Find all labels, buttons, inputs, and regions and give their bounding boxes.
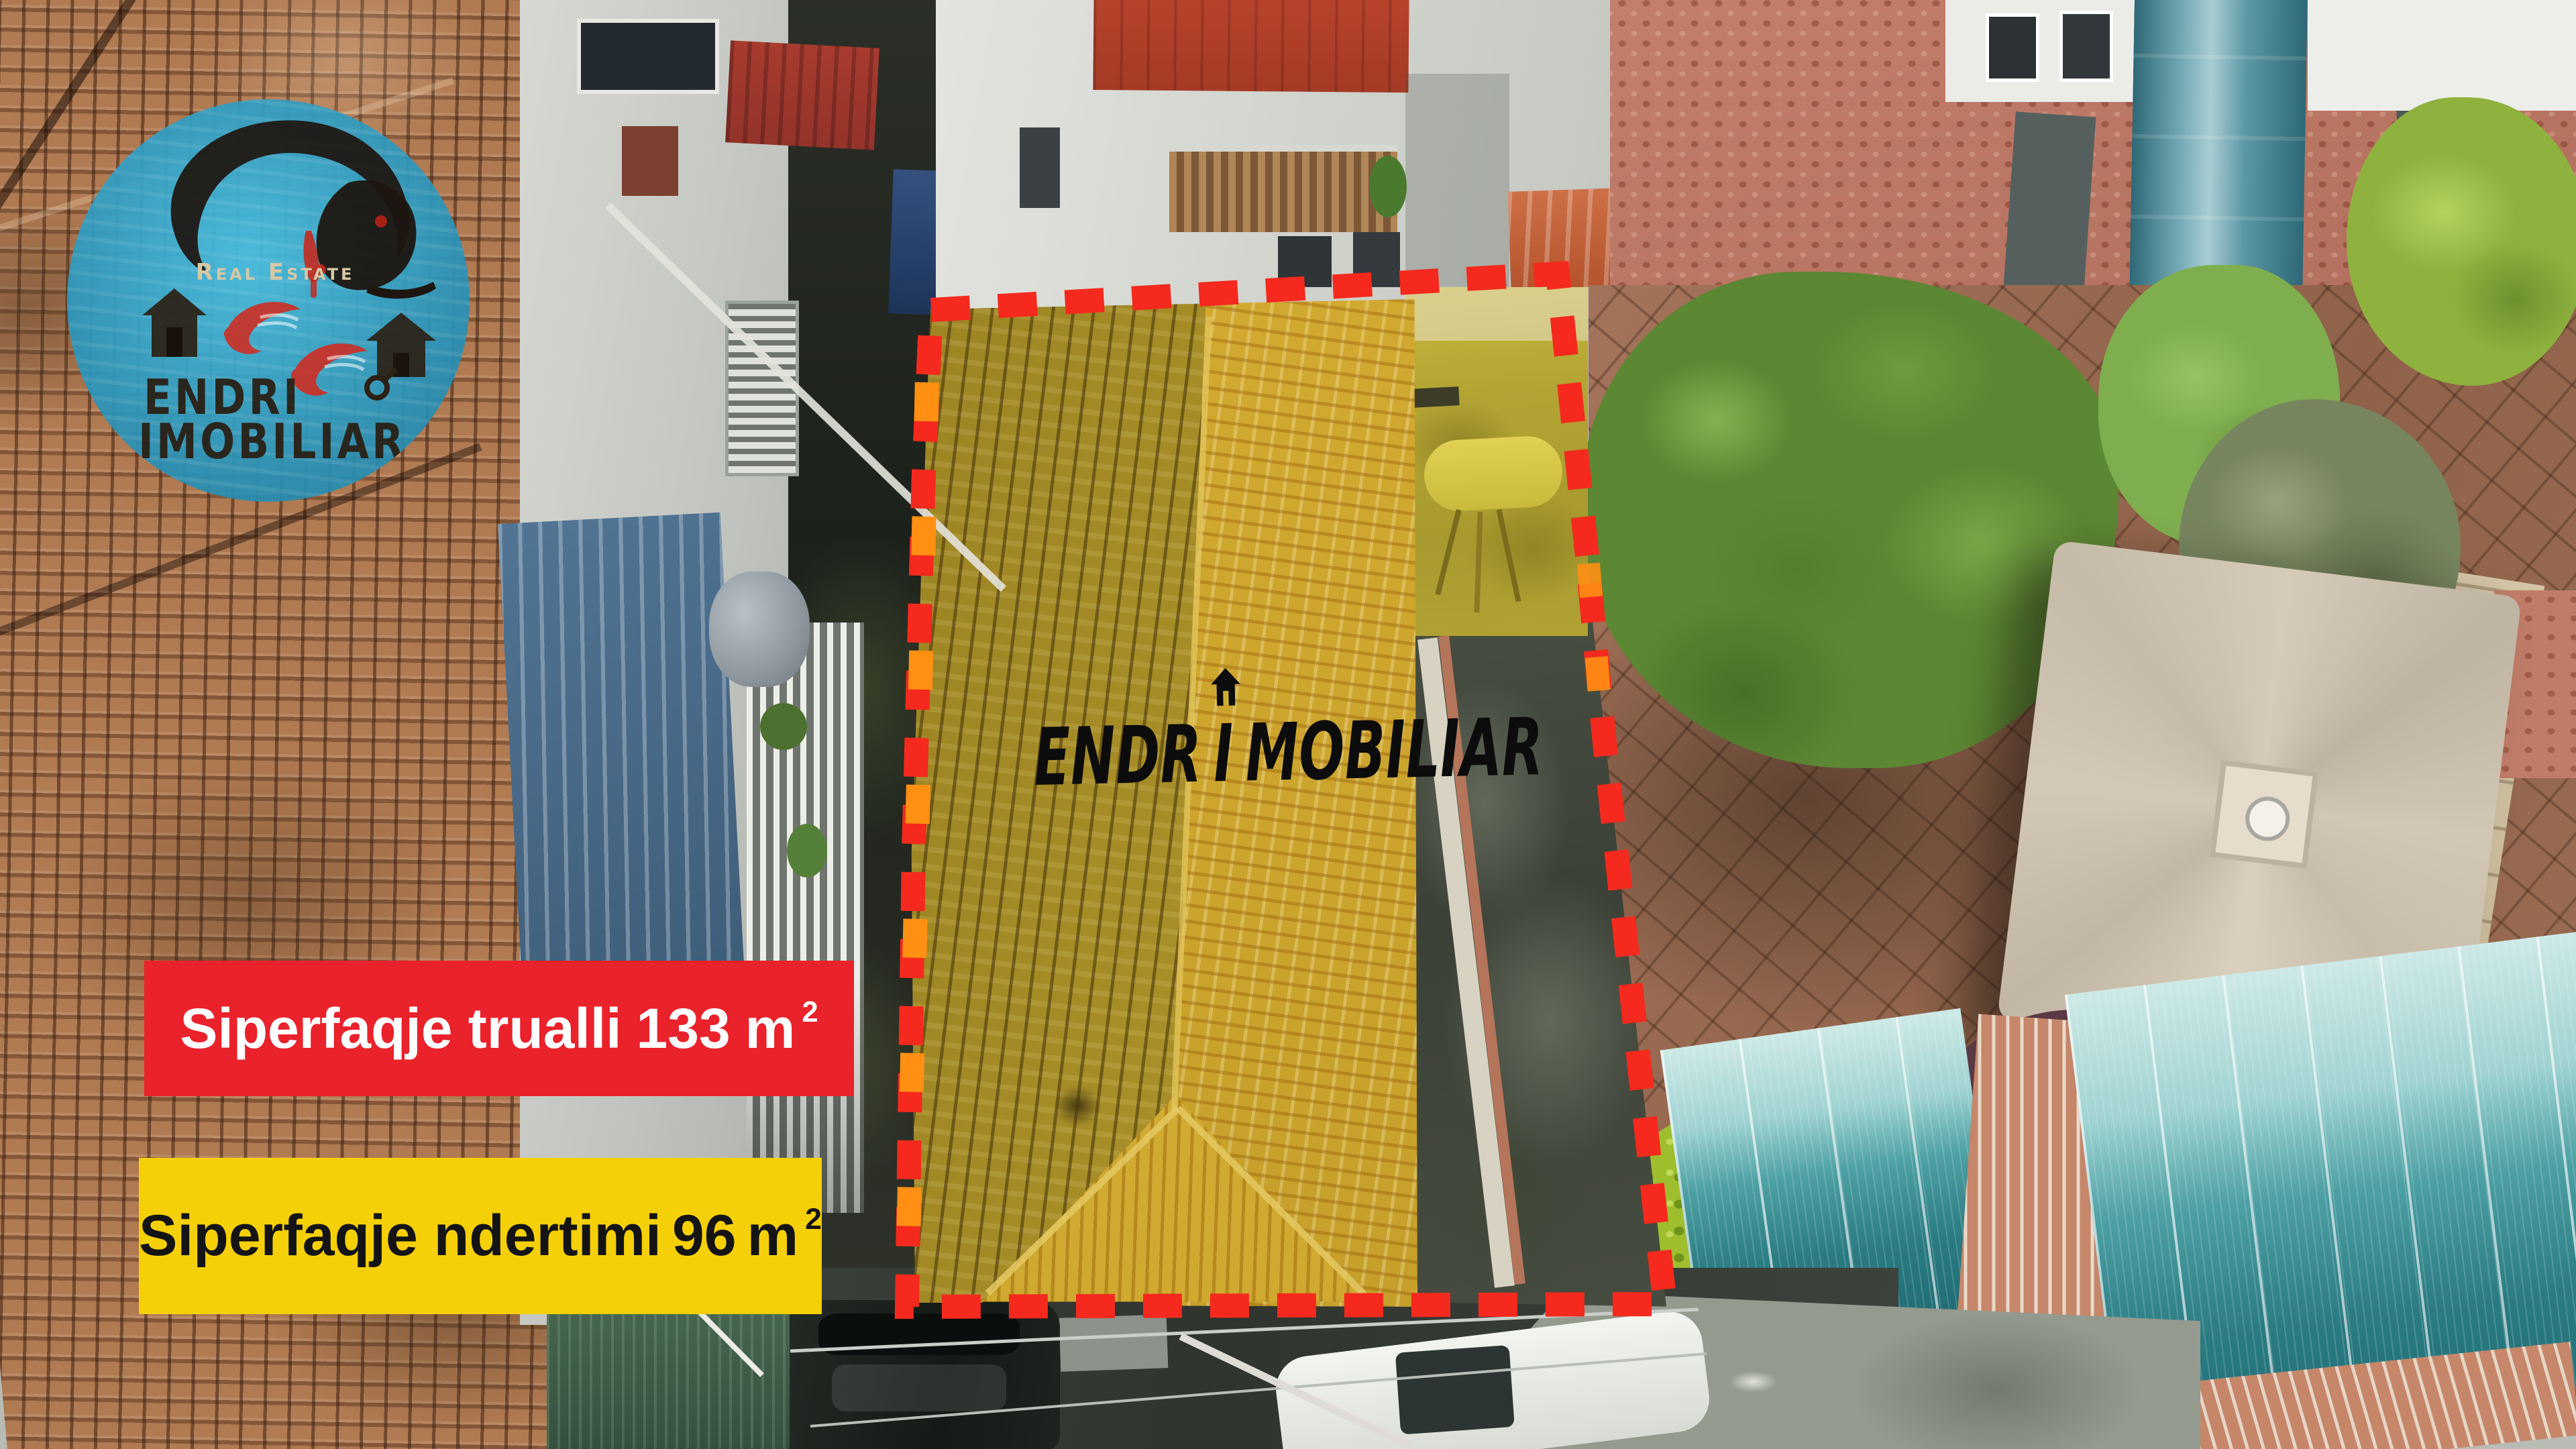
house-icon xyxy=(1211,667,1241,706)
plot-area-value: 133 xyxy=(637,996,731,1061)
building-area-sup: 2 xyxy=(805,1203,822,1236)
agency-logo: Real Estate ENDRI IMOBILIAR xyxy=(67,99,470,502)
plot-area-label: Siperfaqje trualli 133 m 2 xyxy=(144,961,854,1096)
plot-area-sup: 2 xyxy=(802,996,818,1029)
house-keys-icon xyxy=(361,313,443,401)
utility-pole xyxy=(1181,1336,1410,1446)
building-area-label: Siperfaqje ndertimi 96 m 2 xyxy=(139,1158,822,1314)
drain-pipe xyxy=(608,205,1004,589)
building-area-unit: m xyxy=(747,1203,798,1269)
watermark-letter-i: I xyxy=(1212,707,1234,800)
building-area-value: 96 xyxy=(672,1203,737,1269)
plot-area-text: Siperfaqje trualli xyxy=(180,996,621,1061)
watermark-text-right: MOBILIAR xyxy=(1244,700,1544,799)
roof-hip-line xyxy=(1178,1108,1364,1295)
watermark-text-left: ENDR xyxy=(1032,708,1202,804)
watermark: ENDR I MOBILIAR xyxy=(1109,667,1467,802)
aerial-property-photo: ENDR I MOBILIAR Real Estate xyxy=(0,0,2576,1449)
logo-tagline: Real Estate xyxy=(195,259,356,286)
roof-hip-line xyxy=(987,1108,1178,1293)
building-area-text: Siperfaqje ndertimi xyxy=(139,1203,661,1269)
power-line xyxy=(810,1354,1707,1426)
plot-area-unit: m xyxy=(745,996,796,1061)
logo-brand-line2: IMOBILIAR xyxy=(138,413,407,470)
house-icon xyxy=(142,288,207,358)
